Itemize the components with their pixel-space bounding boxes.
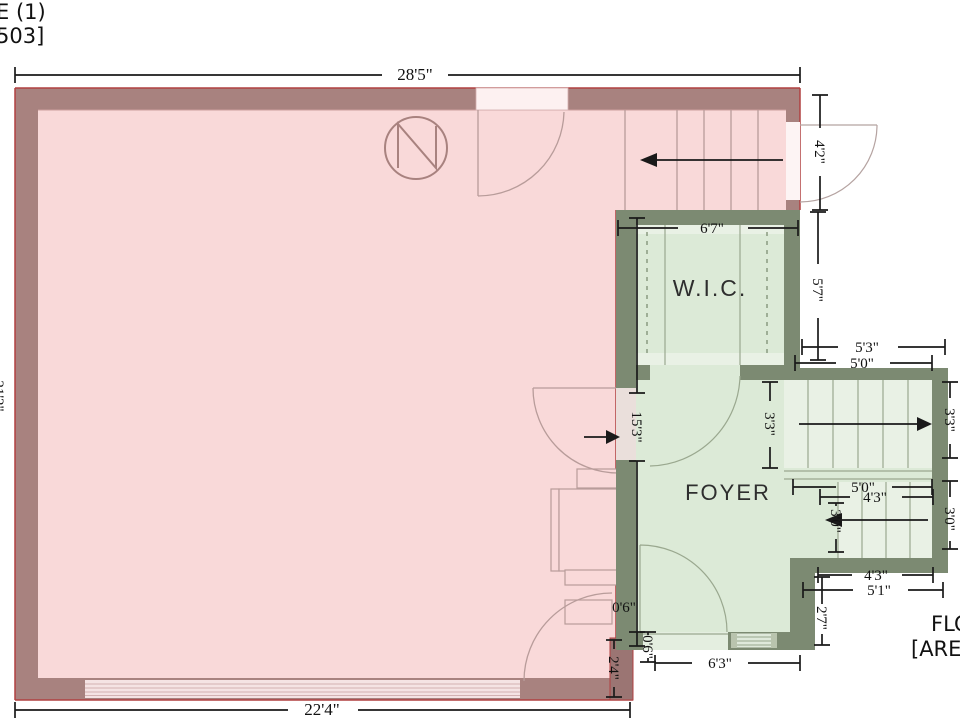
stairs-upper — [784, 380, 932, 479]
svg-text:0'6": 0'6" — [639, 635, 655, 659]
foyer-wall-bottom-a — [616, 632, 643, 650]
svg-text:5'0": 5'0" — [850, 356, 874, 372]
svg-text:6'7": 6'7" — [700, 221, 724, 237]
svg-text:21'2": 21'2" — [0, 380, 6, 411]
dim-foyer-width: 6'3" — [655, 655, 800, 672]
wall-top — [15, 88, 800, 110]
dim-low-27: 2'7" — [813, 577, 830, 645]
foyer-wall-left — [616, 460, 636, 650]
dim-top: 28'5" — [15, 65, 800, 84]
svg-text:0'6": 0'6" — [612, 600, 636, 616]
dim-upper-53: 5'3" — [802, 339, 945, 356]
cabinet-small-bottom — [565, 570, 618, 585]
svg-text:3'3": 3'3" — [941, 408, 957, 432]
cabinet-large — [559, 489, 619, 571]
svg-text:15'3": 15'3" — [628, 411, 644, 442]
cabinet-small-top — [577, 469, 617, 488]
floor-plan: W.I.C. FOYER 28'5" 22'4" 21'2" 4'2" 6'7"… — [0, 0, 960, 720]
dim-left-partial: 21'2" — [0, 380, 6, 411]
partial-text-top-2: 503] — [0, 24, 44, 48]
svg-text:3'0": 3'0" — [941, 507, 957, 531]
svg-text:5'1": 5'1" — [867, 583, 891, 599]
svg-text:22'4": 22'4" — [304, 700, 340, 719]
svg-text:4'2": 4'2" — [811, 140, 827, 164]
svg-text:4'3": 4'3" — [864, 568, 888, 584]
wic-label: W.I.C. — [673, 275, 748, 301]
wic-wall-left-upper — [616, 210, 636, 388]
wic-wall-bottom-a — [636, 365, 650, 380]
wic-wall-right — [784, 225, 800, 380]
dim-stair-door: 4'2" — [811, 95, 828, 210]
svg-text:2'7": 2'7" — [813, 606, 829, 630]
svg-text:4'3": 4'3" — [863, 490, 887, 506]
svg-text:2'4": 2'4" — [605, 656, 621, 680]
wall-left — [15, 88, 38, 700]
door-nook-exterior — [786, 122, 877, 202]
window-foyer — [731, 633, 777, 648]
dim-offset-v: 0'6" — [639, 632, 656, 662]
svg-text:3'3": 3'3" — [761, 412, 777, 436]
partial-text-bottom-2: [ARE — [911, 637, 960, 661]
svg-text:3'0": 3'0" — [827, 509, 843, 533]
window-main — [85, 680, 520, 698]
partial-text-top-1: E (1) — [0, 0, 46, 24]
foyer-label: FOYER — [685, 480, 771, 505]
dim-low-51: 5'1" — [803, 582, 943, 599]
svg-text:5'3": 5'3" — [855, 340, 879, 356]
dim-bottom: 22'4" — [15, 700, 630, 719]
dim-offset-h: 0'6" — [612, 600, 636, 616]
partial-text-bottom-1: FLO — [931, 612, 960, 636]
svg-text:6'3": 6'3" — [708, 656, 732, 672]
dim-wic-height: 5'7" — [809, 212, 826, 360]
svg-text:5'7": 5'7" — [809, 278, 825, 302]
main-room-floor — [38, 210, 616, 678]
svg-text:28'5": 28'5" — [397, 65, 433, 84]
cabinet-side-strip — [551, 489, 559, 571]
